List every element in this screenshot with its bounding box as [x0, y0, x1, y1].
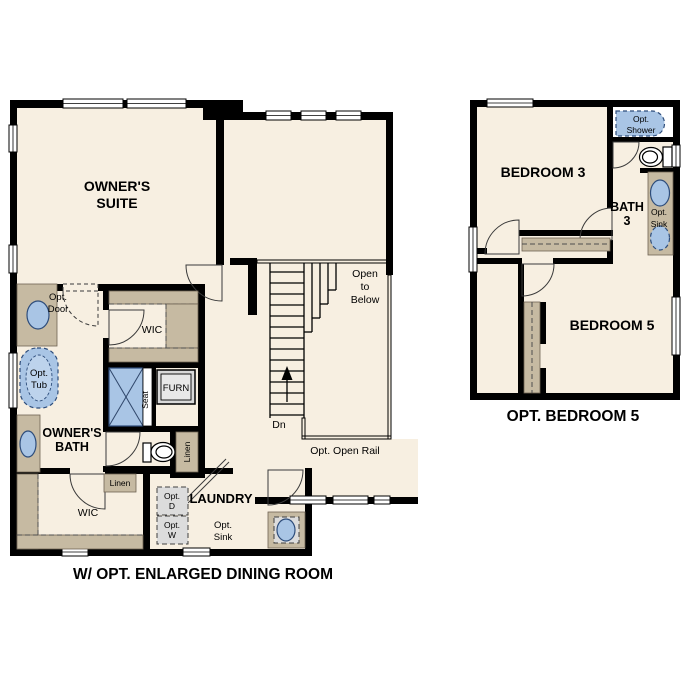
wic-shelf — [109, 348, 198, 362]
optional-sink — [651, 226, 670, 250]
label-opt-sink: Sink — [214, 532, 233, 543]
room-label-owners-bath: BATH — [55, 440, 89, 454]
left-plan: OWNER'S SUITE Opt. Door WIC Opt. Tub FUR… — [9, 99, 418, 583]
room-label-bath3: BATH — [610, 200, 644, 214]
sink — [20, 431, 36, 457]
room-label-bedroom5: BEDROOM 5 — [570, 317, 655, 333]
label-opt-sink: Opt. — [214, 520, 232, 531]
label-opt-door: Door — [48, 304, 69, 315]
sink — [27, 301, 49, 329]
room-label-bedroom3: BEDROOM 3 — [501, 164, 586, 180]
floorplan-canvas: OWNER'S SUITE Opt. Door WIC Opt. Tub FUR… — [0, 0, 687, 687]
label-opt-washer: W — [168, 530, 176, 540]
left-plan-floor — [10, 100, 418, 556]
room-label-wic-lower: WIC — [78, 507, 99, 519]
label-open-to-below: Below — [351, 294, 380, 306]
room-label-owners-suite: SUITE — [96, 195, 137, 211]
label-opt-sink: Opt. — [651, 207, 667, 217]
floorplan-drawing: OWNER'S SUITE Opt. Door WIC Opt. Tub FUR… — [0, 0, 687, 687]
wic-shelf — [109, 291, 198, 304]
label-open-to-below: Open — [352, 268, 378, 280]
closet-shelf — [524, 302, 540, 393]
label-shower-seat: Seat — [140, 391, 150, 409]
label-opt-sink: Sink — [651, 219, 668, 229]
sink — [651, 180, 670, 206]
label-furnace: FURN — [163, 383, 190, 394]
label-opt-shower: Shower — [627, 125, 656, 135]
toilet — [640, 147, 673, 167]
label-opt-dryer: D — [169, 501, 175, 511]
label-open-to-below: to — [361, 281, 370, 293]
label-opt-open-rail: Opt. Open Rail — [310, 445, 379, 457]
wic-shelf — [17, 535, 143, 549]
label-linen: Linen — [110, 478, 131, 488]
room-label-bath3: 3 — [624, 214, 631, 228]
room-label-laundry: LAUNDRY — [189, 491, 252, 506]
label-opt-tub: Opt. — [30, 368, 48, 379]
right-plan-caption: OPT. BEDROOM 5 — [507, 408, 640, 425]
label-linen: Linen — [182, 441, 192, 462]
label-opt-dryer: Opt. — [164, 491, 180, 501]
label-opt-tub: Tub — [31, 380, 47, 391]
label-opt-door: Opt. — [49, 292, 67, 303]
room-label-wic-upper: WIC — [142, 324, 163, 336]
optional-sink — [274, 517, 299, 543]
room-label-owners-suite: OWNER'S — [84, 178, 150, 194]
label-opt-washer: Opt. — [164, 520, 180, 530]
label-opt-shower: Opt. — [633, 114, 649, 124]
room-label-owners-bath: OWNER'S — [42, 426, 101, 440]
wic-shelf — [166, 304, 198, 348]
right-plan: Opt. Shower BEDROOM 3 BATH 3 Opt. Sink B… — [469, 99, 680, 425]
toilet — [143, 443, 175, 463]
label-stairs-down: Dn — [272, 419, 286, 431]
left-plan-caption: W/ OPT. ENLARGED DINING ROOM — [73, 566, 333, 583]
